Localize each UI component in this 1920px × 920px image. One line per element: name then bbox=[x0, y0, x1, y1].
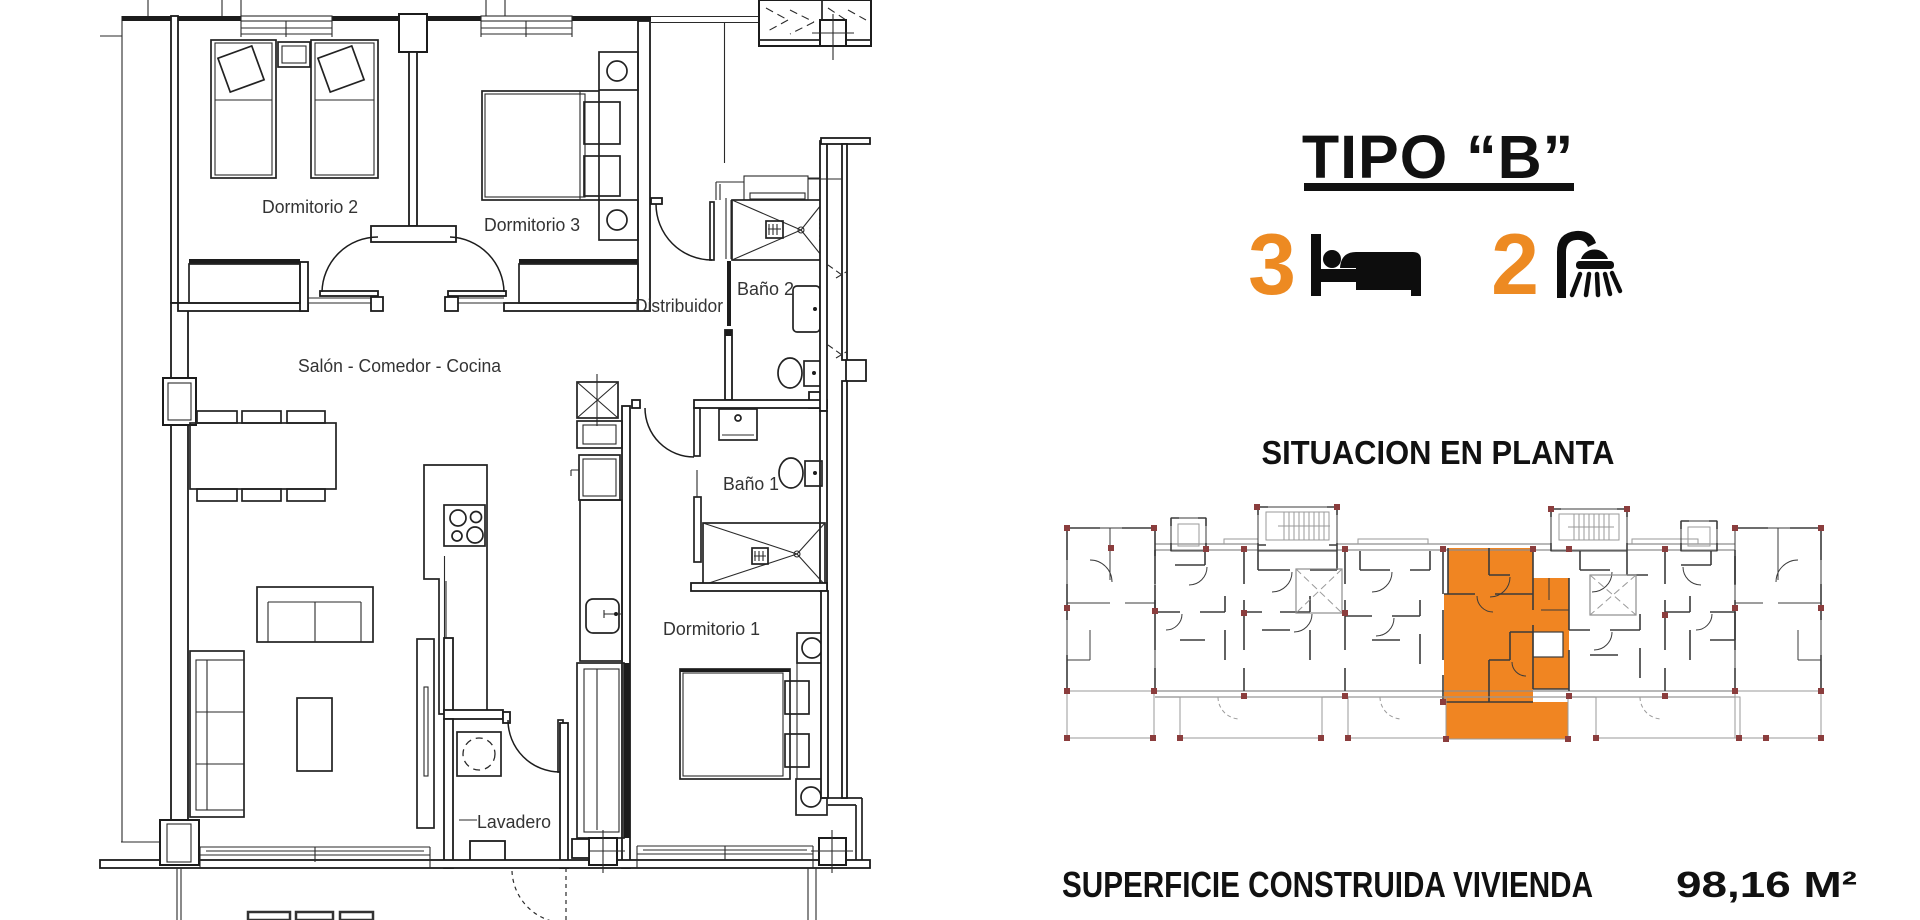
svg-text:Dormitorio 1: Dormitorio 1 bbox=[663, 619, 760, 639]
svg-text:98,16 M²: 98,16 M² bbox=[1676, 864, 1857, 905]
svg-text:Salón - Comedor - Cocina: Salón - Comedor - Cocina bbox=[298, 356, 502, 376]
svg-text:Dormitorio 3: Dormitorio 3 bbox=[484, 215, 580, 235]
svg-text:2: 2 bbox=[1491, 217, 1539, 313]
svg-text:Lavadero: Lavadero bbox=[477, 812, 551, 832]
svg-text:SUPERFICIE CONSTRUIDA VIVIENDA: SUPERFICIE CONSTRUIDA VIVIENDA bbox=[1062, 864, 1593, 905]
svg-text:TIPO “B”: TIPO “B” bbox=[1302, 123, 1574, 191]
svg-text:Distribuidor: Distribuidor bbox=[635, 296, 723, 316]
svg-text:SITUACION EN PLANTA: SITUACION EN PLANTA bbox=[1262, 434, 1615, 471]
svg-text:Dormitorio 2: Dormitorio 2 bbox=[262, 197, 358, 217]
svg-text:3: 3 bbox=[1248, 217, 1296, 313]
svg-text:Baño 2: Baño 2 bbox=[737, 279, 794, 299]
svg-text:Baño 1: Baño 1 bbox=[723, 474, 779, 494]
